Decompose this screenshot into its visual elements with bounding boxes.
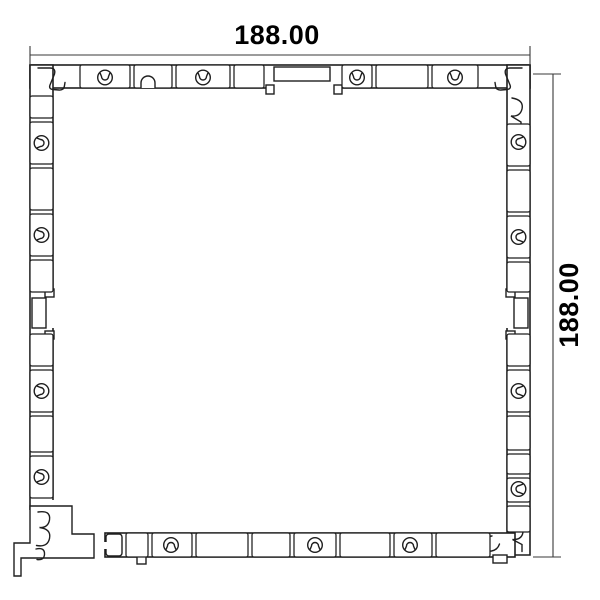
chamber	[507, 416, 530, 450]
height-dim-label: 188.00	[554, 262, 584, 348]
height-dimension: 188.00	[533, 74, 584, 557]
screw-port-icon	[196, 70, 211, 85]
chamber	[340, 533, 390, 557]
bottom-left-clip-slot	[103, 542, 110, 549]
top-groove-channel	[274, 67, 330, 81]
chamber	[30, 168, 53, 210]
profile-outline	[30, 65, 530, 557]
right-groove-channel	[514, 298, 528, 328]
top-groove-tab-right	[334, 85, 342, 94]
grooves	[32, 67, 528, 339]
chamber	[507, 454, 530, 474]
chamber	[507, 170, 530, 212]
chamber	[507, 506, 530, 532]
screw-port-icon	[34, 228, 49, 243]
screw-port-icon	[34, 136, 49, 151]
corner-details	[14, 68, 523, 576]
screw-port-icon	[350, 70, 365, 85]
chamber	[436, 533, 490, 557]
width-dimension: 188.00	[30, 20, 530, 64]
chamber	[30, 334, 53, 366]
left-groove-channel	[32, 298, 46, 328]
screw-port-icon	[403, 538, 418, 553]
bottom-left-foot	[14, 506, 94, 576]
screw-port-icon	[34, 384, 49, 399]
screw-ports	[34, 70, 526, 552]
chamber	[30, 260, 53, 292]
chamber	[234, 65, 264, 88]
screw-port-icon	[98, 70, 113, 85]
chamber	[507, 334, 530, 366]
bottom-right-step	[493, 555, 507, 563]
technical-drawing: 188.00 188.00	[0, 0, 600, 600]
chamber	[376, 65, 428, 88]
chamber	[252, 533, 290, 557]
screw-port-icon	[511, 384, 526, 399]
screw-port-icon	[511, 135, 526, 150]
chamber	[30, 96, 53, 118]
screw-port-icon	[308, 538, 323, 553]
chamber	[507, 262, 530, 292]
screw-port-icon	[34, 470, 49, 485]
screw-port-icon	[511, 230, 526, 245]
chamber	[126, 533, 148, 557]
chamber	[30, 416, 53, 452]
top-groove-tab-left	[266, 85, 274, 94]
screw-port-icon	[511, 482, 526, 497]
screw-port-icon	[448, 70, 463, 85]
chamber	[196, 533, 248, 557]
top-wall-notch	[141, 76, 155, 88]
screw-port-icon	[164, 538, 179, 553]
width-dim-label: 188.00	[234, 20, 320, 50]
